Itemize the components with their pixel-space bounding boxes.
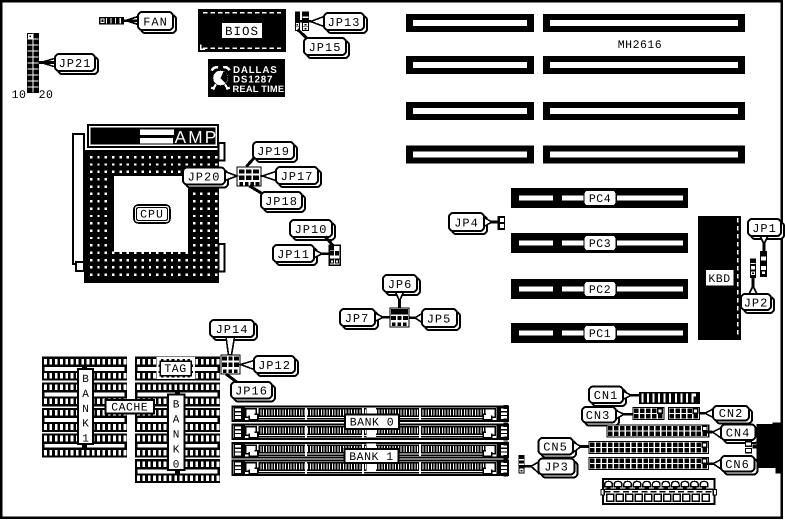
svg-text:CN1: CN1 <box>594 389 619 403</box>
svg-text:BANK 0: BANK 0 <box>350 417 394 430</box>
svg-text:AMP: AMP <box>175 127 219 147</box>
svg-text:JP16: JP16 <box>235 385 268 399</box>
svg-text:JP5: JP5 <box>427 312 452 326</box>
svg-text:BANK 1: BANK 1 <box>349 451 393 464</box>
svg-text:REAL TIME: REAL TIME <box>233 84 285 94</box>
svg-text:JP17: JP17 <box>281 170 314 184</box>
svg-text:N: N <box>173 430 180 442</box>
svg-text:N: N <box>82 404 89 416</box>
svg-text:CPU: CPU <box>140 208 164 221</box>
svg-text:JP7: JP7 <box>345 312 370 326</box>
svg-text:B: B <box>82 374 89 386</box>
svg-text:JP2: JP2 <box>744 296 769 310</box>
svg-text:0: 0 <box>173 460 180 472</box>
svg-text:JP1: JP1 <box>752 222 777 236</box>
svg-text:PC2: PC2 <box>589 284 611 297</box>
svg-text:CN6: CN6 <box>725 458 750 472</box>
svg-text:CACHE: CACHE <box>111 402 148 415</box>
svg-text:K: K <box>82 419 89 431</box>
svg-text:JP11: JP11 <box>277 248 310 262</box>
svg-text:B: B <box>173 400 180 412</box>
svg-text:JP14: JP14 <box>216 323 249 337</box>
svg-text:JP19: JP19 <box>257 145 290 159</box>
svg-text:JP15: JP15 <box>309 41 342 55</box>
svg-text:K: K <box>173 445 180 457</box>
svg-text:CN2: CN2 <box>719 407 744 421</box>
svg-text:PC4: PC4 <box>589 193 611 206</box>
svg-text:KBD: KBD <box>708 273 730 286</box>
svg-text:10: 10 <box>12 89 27 102</box>
svg-text:PC1: PC1 <box>589 328 611 341</box>
svg-text:1: 1 <box>82 434 89 446</box>
svg-text:FAN: FAN <box>143 15 168 29</box>
svg-text:JP13: JP13 <box>328 16 361 30</box>
svg-text:JP10: JP10 <box>295 223 328 237</box>
svg-text:JP20: JP20 <box>188 170 221 184</box>
svg-text:PC3: PC3 <box>589 238 611 251</box>
svg-text:JP12: JP12 <box>258 359 291 373</box>
svg-text:MH2616: MH2616 <box>618 39 662 52</box>
svg-text:TAG: TAG <box>164 363 186 376</box>
svg-text:CN5: CN5 <box>543 440 568 454</box>
svg-text:CN4: CN4 <box>726 426 751 440</box>
svg-text:JP18: JP18 <box>265 195 298 209</box>
svg-text:BIOS: BIOS <box>225 25 259 39</box>
svg-text:20: 20 <box>39 89 54 102</box>
svg-text:CN3: CN3 <box>586 409 611 423</box>
svg-text:A: A <box>82 389 89 401</box>
svg-text:JP4: JP4 <box>454 216 479 230</box>
svg-text:JP6: JP6 <box>388 278 413 292</box>
svg-text:A: A <box>173 415 180 427</box>
svg-text:JP3: JP3 <box>544 461 569 475</box>
svg-text:JP21: JP21 <box>59 57 92 71</box>
